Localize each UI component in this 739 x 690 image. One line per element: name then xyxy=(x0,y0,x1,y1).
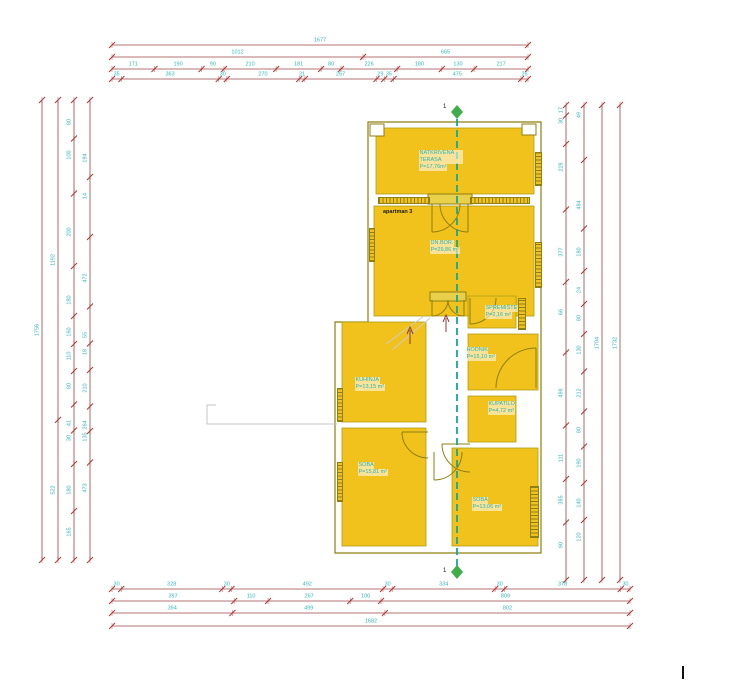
floor-plan-canvas xyxy=(0,0,739,690)
window-soba-desno-right xyxy=(530,486,539,538)
room-area: P=15,10 m² xyxy=(466,354,496,361)
room-label-spremiste: SPREMIŠTE P=2,16 m² xyxy=(485,305,518,319)
section-number-top: 1 xyxy=(443,104,446,110)
wall-hatch-terasa-right xyxy=(470,197,530,204)
room-label-kupatilo: KUPATILO P=4,72 m² xyxy=(488,401,515,415)
room-area: P=29,86 m² xyxy=(430,247,460,254)
room-name: KUPATILO xyxy=(488,401,515,408)
door-lintel-terasa xyxy=(428,194,472,204)
room-kuhinja xyxy=(342,322,426,422)
room-hodnik xyxy=(468,334,538,390)
pillar-right xyxy=(522,124,536,135)
room-name: HODNIK xyxy=(466,347,488,354)
room-label-soba-lijevo: SOBA P=15,81 m² xyxy=(358,462,388,476)
window-dnevni-left xyxy=(369,228,375,262)
room-area: P=13,15 m² xyxy=(355,384,385,391)
window-kuhinja-left xyxy=(337,388,343,422)
room-name: SOBA xyxy=(358,462,374,469)
door-lintel-entry xyxy=(430,292,466,301)
section-marker-top-icon xyxy=(451,105,463,119)
room-name: NATKRIVENA TERASA xyxy=(419,150,463,164)
room-label-soba-desno: SOBA P=13,06 m² xyxy=(472,497,502,511)
room-label-terasa: NATKRIVENA TERASA P=17,76m² xyxy=(419,150,463,171)
room-area: P=4,72 m² xyxy=(488,408,515,415)
wall-hatch-terasa-left xyxy=(378,197,430,204)
section-marker-bottom-icon xyxy=(451,565,463,579)
room-label-hodnik: HODNIK P=15,10 m² xyxy=(466,347,496,361)
apartment-label: apartman 3 xyxy=(383,209,412,215)
room-name: KUHINJA xyxy=(355,377,380,384)
window-dnevni-right xyxy=(535,242,542,288)
wall-hatch-spremiste xyxy=(518,298,526,330)
room-label-kuhinja: KUHINJA P=13,15 m² xyxy=(355,377,385,391)
pillar-left xyxy=(370,124,384,136)
room-area: P=15,81 m² xyxy=(358,469,388,476)
room-name: SPREMIŠTE xyxy=(485,305,518,312)
room-area: P=13,06 m² xyxy=(472,504,502,511)
room-name: SOBA xyxy=(472,497,488,504)
room-area: P=2,16 m² xyxy=(485,312,512,319)
corner-mark xyxy=(682,666,684,679)
floorplan-sheet: NATKRIVENA TERASA P=17,76m² apartman 3 D… xyxy=(0,0,739,690)
exterior-step-line xyxy=(207,405,337,424)
window-soba-lijevo-left xyxy=(337,462,343,502)
room-soba-lijevo xyxy=(342,428,426,546)
room-area: P=17,76m² xyxy=(419,164,447,171)
section-number-bottom: 1 xyxy=(443,568,446,574)
window-terasa-right xyxy=(535,152,542,186)
room-name: DN.BOR. xyxy=(430,240,454,247)
room-label-dnevni: DN.BOR. P=29,86 m² xyxy=(430,240,460,254)
